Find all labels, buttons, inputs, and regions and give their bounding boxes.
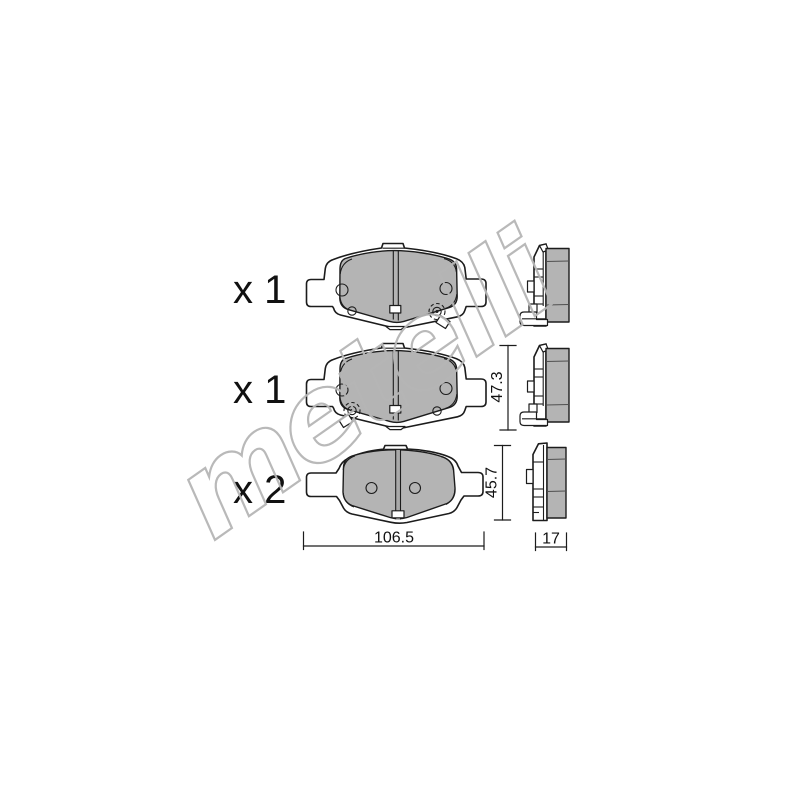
friction-chamfer-line-top: [547, 459, 566, 460]
dimension-value: 45.7: [484, 467, 501, 498]
dimension-pad-width: 106.5: [304, 530, 485, 550]
side-ear-tab: [527, 470, 534, 484]
friction-chamfer-line-bottom: [547, 491, 566, 492]
side-backplate: [533, 443, 547, 521]
dimension-value: 17: [542, 531, 560, 548]
side-friction-block: [547, 448, 566, 519]
diagram-svg: x 1 x 1 x 2: [0, 0, 800, 800]
pad-3-side-view: [527, 443, 567, 521]
pad-2-side-view: [520, 344, 569, 426]
brake-pad-technical-drawing: x 1 x 1 x 2: [0, 0, 800, 800]
dimension-value: 106.5: [374, 530, 414, 547]
dimension-pad-thickness: 17: [536, 531, 567, 551]
slot-end-block: [392, 511, 404, 518]
dimension-bottom-pad-height: 45.7: [484, 446, 511, 521]
center-slot-band: [396, 450, 401, 520]
quantity-label-1: x 1: [233, 268, 286, 312]
